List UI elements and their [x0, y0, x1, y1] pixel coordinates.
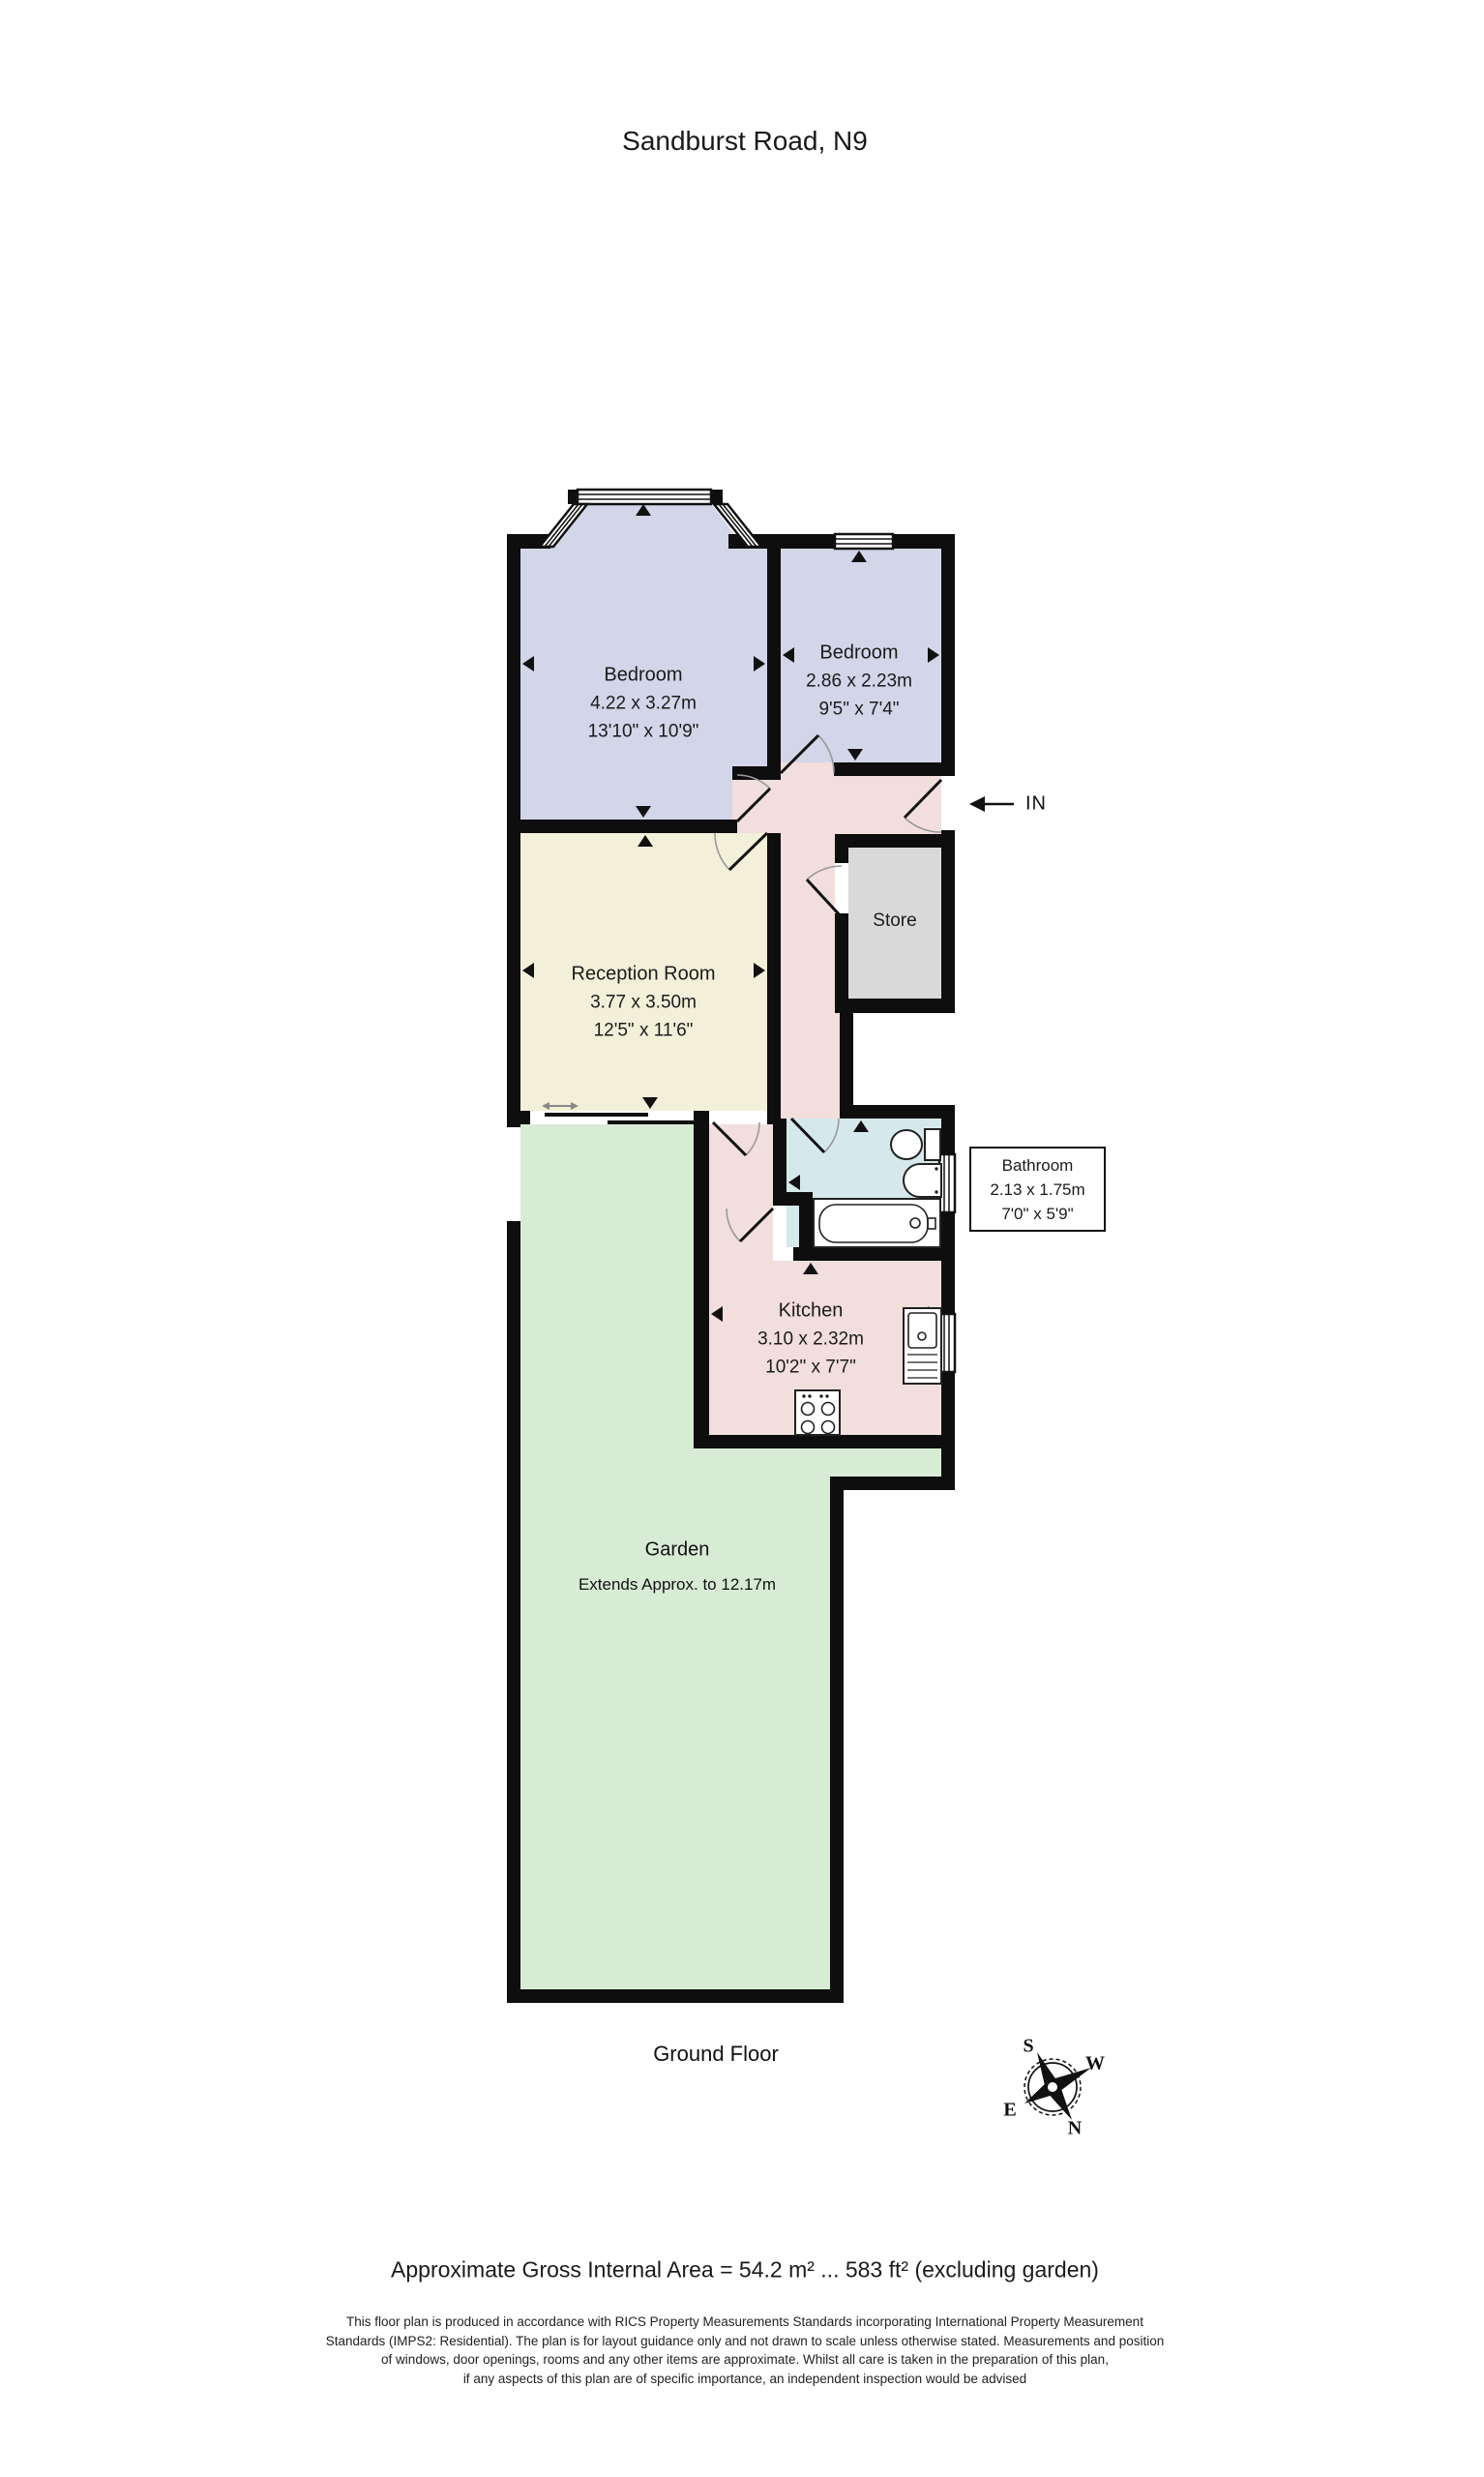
wall-reception-right: [767, 833, 781, 1124]
basin-tap-icon: [935, 1190, 937, 1193]
wall-right-top: [941, 534, 955, 776]
floorplan-page: Sandburst Road, N9 Bedroom 4.22 x 3.27m …: [0, 0, 1484, 2477]
wall-bathroom-jog: [773, 1192, 813, 1206]
room-name: Bathroom: [1002, 1153, 1074, 1178]
toilet-cistern-icon: [925, 1129, 940, 1160]
wall-reception-bottom-stub: [507, 1111, 530, 1124]
wall-left-lower: [507, 1221, 520, 2003]
disclaimer-line: Standards (IMPS2: Residential). The plan…: [326, 2332, 1165, 2351]
wall-bedroom-divider: [767, 534, 781, 780]
wall-store-bottom: [835, 999, 955, 1013]
garden-label: Garden: [645, 1539, 710, 1562]
wall-store-left-a: [835, 848, 848, 863]
disclaimer-line: of windows, door openings, rooms and any…: [326, 2350, 1165, 2370]
page-title: Sandburst Road, N9: [622, 126, 868, 157]
room-dim-imperial: 7'0" x 5'9": [1001, 1202, 1073, 1226]
reception-label: Reception Room 3.77 x 3.50m 12'5" x 11'6…: [572, 961, 716, 1045]
room-name: Reception Room: [572, 961, 716, 989]
bedroom2-window: [835, 534, 893, 549]
wall-garden-right: [830, 1490, 844, 2003]
room-name: Kitchen: [779, 1298, 844, 1326]
hob-knob-icon: [825, 1394, 828, 1397]
wall-right-bath-a: [941, 1105, 955, 1154]
room-dim-imperial: 10'2" x 7'7": [765, 1354, 856, 1382]
bay-window-front: [578, 490, 711, 504]
hob-knob-icon: [802, 1394, 805, 1397]
compass-letter-w: W: [1085, 2053, 1105, 2075]
wall-bathroom-bottom: [793, 1247, 955, 1261]
wall-bedroom2-bottom: [834, 762, 955, 776]
bathroom-callout: Bathroom 2.13 x 1.75m 7'0" x 5'9": [969, 1147, 1106, 1232]
kitchen-label: Kitchen 3.10 x 2.32m 10'2" x 7'7": [757, 1298, 864, 1382]
wall-bath-left: [799, 1206, 813, 1247]
disclaimer-line: if any aspects of this plan are of speci…: [326, 2370, 1165, 2389]
disclaimer: This floor plan is produced in accordanc…: [326, 2313, 1165, 2388]
store-label: Store: [873, 910, 916, 932]
room-dim-metric: 3.77 x 3.50m: [590, 989, 697, 1017]
room-name: Bedroom: [819, 640, 898, 668]
bedroom2-label: Bedroom 2.86 x 2.23m 9'5" x 7'4": [806, 640, 912, 724]
room-dim-metric: 2.86 x 2.23m: [806, 668, 912, 696]
wall-bathroom-top: [840, 1105, 955, 1119]
entrance-arrow: [969, 796, 1014, 812]
wall-reception-top: [507, 820, 737, 833]
room-dim-metric: 3.10 x 2.32m: [757, 1326, 864, 1354]
wall-notch: [840, 1013, 853, 1119]
hall-nook-area: [732, 780, 781, 834]
wall-right-entry: [941, 830, 955, 1013]
room-dim-imperial: 12'5" x 11'6": [594, 1017, 694, 1045]
wall-garden-step: [830, 1477, 955, 1490]
room-dim-metric: 2.13 x 1.75m: [990, 1178, 1084, 1202]
floor-label: Ground Floor: [653, 2042, 779, 2067]
room-dim-imperial: 9'5" x 7'4": [818, 696, 899, 724]
room-name: Bedroom: [604, 662, 682, 690]
disclaimer-line: This floor plan is produced in accordanc…: [326, 2313, 1165, 2332]
wall-bathroom-left: [773, 1119, 787, 1200]
room-dim-metric: 4.22 x 3.27m: [590, 690, 697, 718]
hob-knob-icon: [808, 1394, 811, 1397]
wall-kitchen-bottom: [694, 1435, 955, 1448]
garden-note: Extends Approx. to 12.17m: [579, 1575, 776, 1595]
wall-right-bath-b: [941, 1212, 955, 1314]
wall-store-left-b: [835, 913, 848, 999]
entrance-label: IN: [1025, 793, 1047, 816]
gross-area-note: Approximate Gross Internal Area = 54.2 m…: [391, 2257, 1099, 2283]
compass-letter-s: S: [1023, 2036, 1033, 2058]
bedroom1-label: Bedroom 4.22 x 3.27m 13'10" x 10'9": [588, 662, 699, 746]
wall-garden-bottom: [507, 1989, 844, 2003]
basin-tap-icon: [935, 1167, 937, 1170]
compass-icon: [1024, 2052, 1091, 2120]
wall-nook-stub: [732, 766, 781, 780]
toilet-bowl-icon: [891, 1130, 922, 1159]
compass-letter-e: E: [1003, 2100, 1016, 2122]
wall-store-top: [835, 834, 955, 848]
hob-knob-icon: [819, 1394, 822, 1397]
compass-hub: [1047, 2081, 1058, 2093]
hallway-lower-area: [781, 1012, 840, 1119]
compass-letter-n: N: [1068, 2118, 1082, 2140]
wall-kitchen-left: [694, 1111, 709, 1448]
entrance-arrow-head-icon: [969, 796, 985, 812]
wall-right-below-kitchen: [941, 1448, 955, 1490]
room-dim-imperial: 13'10" x 10'9": [588, 718, 699, 746]
floor-plan-drawing: [0, 0, 1484, 2477]
